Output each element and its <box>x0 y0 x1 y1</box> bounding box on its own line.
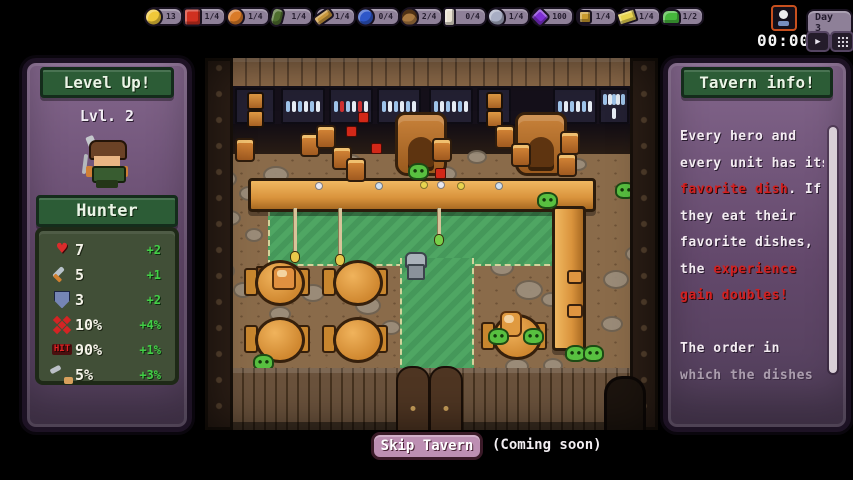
counter-mug <box>495 182 503 190</box>
bottle <box>412 101 416 112</box>
stat-bonus: +2 <box>147 243 165 257</box>
counter-mug <box>315 182 323 190</box>
bottle <box>612 108 616 119</box>
slime-unit[interactable] <box>537 192 558 209</box>
tomato-item <box>371 143 382 154</box>
bottle <box>603 94 607 105</box>
resource-count: 1/2 <box>683 13 697 21</box>
tavern-scene <box>205 58 658 430</box>
small-barrel <box>432 138 452 162</box>
wall-shelf <box>235 88 275 124</box>
dining-table[interactable] <box>328 315 382 359</box>
bottle <box>440 101 444 112</box>
info-line: The order in <box>680 341 824 368</box>
resource-count: 13 <box>166 13 176 21</box>
defense-icon <box>49 290 75 310</box>
info-line: Every hero and <box>680 129 824 156</box>
wood-frame <box>630 58 658 430</box>
resource-slot-carrot[interactable]: 1/4 <box>315 7 356 26</box>
bottle <box>346 101 350 112</box>
resource-bar: 131/41/41/41/40/42/40/41/41001/41/41/2 <box>146 7 704 26</box>
resource-slot-coin[interactable]: 13 <box>146 7 183 26</box>
resource-count: 1/4 <box>509 13 523 21</box>
table-top <box>333 317 383 363</box>
crit-icon <box>58 320 66 328</box>
eggplant-icon <box>267 5 285 28</box>
resource-slot-acorn[interactable]: 2/4 <box>402 7 443 26</box>
attack-icon <box>49 265 75 285</box>
bottle <box>394 101 398 112</box>
floor-stone <box>515 280 543 300</box>
door-panel <box>429 366 463 430</box>
bottle <box>621 94 625 105</box>
stat-row: ♥7+2 <box>45 237 169 262</box>
info-text-segment: The order in <box>680 341 780 356</box>
fox-unit[interactable] <box>272 262 294 288</box>
small-barrel <box>560 131 580 155</box>
stat-bonus: +1% <box>139 343 165 357</box>
info-text-segment: Every hero and <box>680 129 797 144</box>
info-line: every unit has its <box>680 156 824 183</box>
bottle <box>446 101 450 112</box>
dodge-icon <box>49 365 75 385</box>
unit-name-banner: Hunter <box>36 195 178 227</box>
bottle <box>310 101 314 112</box>
info-text-segment: the <box>680 262 713 277</box>
bottle <box>608 94 612 105</box>
info-text-body: Every hero andevery unit has itsfavorite… <box>680 129 824 415</box>
info-text-segment: experience <box>713 262 796 277</box>
resource-count: 2/4 <box>422 13 436 21</box>
bottle <box>564 101 568 112</box>
stat-row: 10%+4% <box>45 312 169 337</box>
stat-value: 5% <box>75 366 127 384</box>
sprite-face <box>94 156 120 166</box>
stat-value: 5 <box>75 266 127 284</box>
slime-unit[interactable] <box>408 163 429 180</box>
hit-icon: HIT <box>52 344 72 355</box>
resource-slot-pumpkin[interactable]: 1/4 <box>228 7 269 26</box>
bottle <box>316 101 320 112</box>
floor-stone <box>467 150 487 164</box>
resource-slot-cheese[interactable]: 1/4 <box>619 7 660 26</box>
info-text-segment: gain doubles! <box>680 288 788 303</box>
info-line <box>680 315 824 342</box>
shelf-pot <box>247 92 264 110</box>
bottle <box>382 101 386 112</box>
bottle <box>576 101 580 112</box>
info-text-segment: they eat their <box>680 209 797 224</box>
level-text: Lvl. 2 <box>27 107 187 125</box>
health-icon: ♥ <box>57 241 67 258</box>
small-barrel <box>316 125 336 149</box>
stat-row: 5%+3% <box>45 362 169 387</box>
resource-slot-grape[interactable]: 100 <box>532 7 573 26</box>
bottle <box>616 94 620 105</box>
blueberry-icon <box>356 7 375 26</box>
counter-mug <box>375 182 383 190</box>
dining-table[interactable] <box>328 258 382 302</box>
bottle <box>358 101 362 112</box>
sprite-legs <box>96 180 118 188</box>
speed-button[interactable] <box>830 31 853 52</box>
stool <box>567 270 583 284</box>
hanging-rope <box>338 208 342 256</box>
info-line: favorite dish. If <box>680 182 824 209</box>
hit-icon: HIT <box>49 340 75 360</box>
stool <box>567 304 583 318</box>
counter-mug <box>437 181 445 189</box>
unit-face <box>277 270 287 277</box>
resource-count: 1/4 <box>292 13 306 21</box>
bottle <box>406 101 410 112</box>
acorn-icon <box>400 7 419 26</box>
level-up-banner: Level Up! <box>40 67 174 98</box>
door-panel <box>396 366 430 430</box>
shelf-pot <box>247 110 264 128</box>
small-barrel <box>235 138 255 162</box>
bottle <box>588 101 592 112</box>
slime-unit[interactable] <box>523 328 544 345</box>
level-up-panel: Level Up! Lvl. 2 Hunter ♥7+25+13+210%+4%… <box>22 58 192 432</box>
floor-stone <box>603 270 629 289</box>
resource-slot-fish[interactable]: 1/4 <box>489 7 530 26</box>
timer-display: 00:00 <box>757 31 810 50</box>
stat-bonus: +3% <box>139 368 165 382</box>
stat-bonus: +1 <box>147 268 165 282</box>
bottle <box>364 101 368 112</box>
stat-bonus: +2 <box>147 293 165 307</box>
stat-row: HIT90%+1% <box>45 337 169 362</box>
counter-mug <box>420 181 428 189</box>
resource-slot-frog[interactable]: 1/2 <box>663 7 704 26</box>
bottle <box>558 101 562 112</box>
bottle <box>286 101 290 112</box>
resource-count: 0/4 <box>378 13 392 21</box>
floor-stone <box>245 228 263 242</box>
bottle <box>400 101 404 112</box>
cheese-icon <box>615 7 638 26</box>
resource-slot-tomato[interactable]: 1/4 <box>185 7 226 26</box>
bottle <box>388 101 392 112</box>
resource-slot-milk[interactable]: 0/4 <box>445 7 486 26</box>
grape-icon <box>529 5 552 28</box>
resource-count: 100 <box>552 13 566 21</box>
coming-soon-note: (Coming soon) <box>492 437 602 453</box>
game-screen: 131/41/41/41/40/42/40/41/41001/41/41/2 D… <box>0 0 853 480</box>
camera-button[interactable] <box>771 5 797 31</box>
info-text-segment: every unit has its <box>680 156 824 171</box>
stat-value: 10% <box>75 316 127 334</box>
coin-icon <box>144 7 163 26</box>
small-barrel <box>511 143 531 167</box>
resource-count: 1/4 <box>596 13 610 21</box>
bottle <box>304 101 308 112</box>
bottle <box>340 101 344 112</box>
frog-icon <box>661 9 681 25</box>
unit-face <box>504 315 514 323</box>
scrollbar-thumb[interactable] <box>829 127 837 373</box>
bottle <box>452 101 456 112</box>
stat-row: 5+1 <box>45 262 169 287</box>
bottle <box>458 101 462 112</box>
bottle <box>464 101 468 112</box>
floor-stone <box>601 316 623 332</box>
stat-row: 3+2 <box>45 287 169 312</box>
speed-icon <box>837 36 848 47</box>
resource-count: 1/4 <box>248 13 262 21</box>
small-barrel <box>557 153 577 177</box>
bottle <box>298 101 302 112</box>
resource-count: 1/4 <box>639 13 653 21</box>
knight-unit[interactable] <box>405 252 425 278</box>
bottle <box>292 101 296 112</box>
play-button[interactable]: ▶ <box>806 31 830 52</box>
tomato-icon <box>183 7 202 26</box>
milk-icon <box>443 7 456 27</box>
tomato-item <box>346 126 357 137</box>
wall-shelf <box>281 88 325 124</box>
bottle <box>582 101 586 112</box>
info-text-segment: favorite dishes, <box>680 235 813 250</box>
hanging-rope <box>293 208 297 253</box>
resource-slot-blueberry[interactable]: 0/4 <box>358 7 399 26</box>
tavern-info-banner: Tavern info! <box>681 67 833 98</box>
carrot-icon <box>311 6 335 28</box>
table-top <box>333 260 383 306</box>
info-line: favorite dishes, <box>680 235 824 262</box>
tavern-info-panel: Tavern info! Every hero andevery unit ha… <box>663 58 851 432</box>
health-icon: ♥ <box>49 240 75 260</box>
info-line: which the dishes <box>680 368 824 395</box>
info-text-segment: favorite dish <box>680 182 788 197</box>
dining-table[interactable] <box>250 315 304 359</box>
bottle <box>612 94 616 105</box>
stat-value: 3 <box>75 291 127 309</box>
crit-icon <box>49 315 75 335</box>
info-text-segment: . If <box>788 182 821 197</box>
stat-bonus: +4% <box>139 318 165 332</box>
stat-value: 90% <box>75 341 127 359</box>
fish-icon <box>487 7 506 26</box>
unit-body <box>407 264 425 280</box>
bottle <box>434 101 438 112</box>
bottle <box>352 101 356 112</box>
resource-slot-gold-ore[interactable]: 1/4 <box>576 7 617 26</box>
resource-slot-eggplant[interactable]: 1/4 <box>272 7 313 26</box>
attack-icon <box>53 266 71 284</box>
wood-frame <box>205 58 233 430</box>
dodge-icon <box>53 366 71 384</box>
defense-icon <box>54 291 70 309</box>
slime-unit[interactable] <box>488 328 509 345</box>
bottle <box>334 101 338 112</box>
play-icon: ▶ <box>815 37 820 47</box>
skip-tavern-button[interactable]: Skip Tavern <box>371 432 483 460</box>
hunter-sprite <box>84 137 130 189</box>
info-text-segment: which the dishes <box>680 368 813 383</box>
wall-shelf <box>477 88 511 124</box>
small-barrel <box>346 158 366 182</box>
bottle <box>570 101 574 112</box>
pumpkin-icon <box>226 7 245 26</box>
info-line: gain doubles! <box>680 288 824 315</box>
wall-shelf <box>599 88 629 124</box>
resource-count: 0/4 <box>465 13 479 21</box>
shelf-pot <box>486 92 503 110</box>
counter-mug <box>457 182 465 190</box>
tavern-door <box>396 366 462 428</box>
side-archway <box>604 376 646 430</box>
tomato-item <box>435 168 446 179</box>
tomato-item <box>358 112 369 123</box>
resource-count: 1/4 <box>205 13 219 21</box>
stats-box: ♥7+25+13+210%+4%HIT90%+1%5%+3% <box>35 227 179 385</box>
gold-ore-icon <box>578 10 592 24</box>
stat-value: 7 <box>75 241 127 259</box>
rope-handle <box>434 234 444 246</box>
hanging-rope <box>437 208 441 236</box>
info-line: the experience <box>680 262 824 289</box>
slime-unit[interactable] <box>583 345 604 362</box>
info-line: they eat their <box>680 209 824 236</box>
resource-count: 1/4 <box>335 13 349 21</box>
